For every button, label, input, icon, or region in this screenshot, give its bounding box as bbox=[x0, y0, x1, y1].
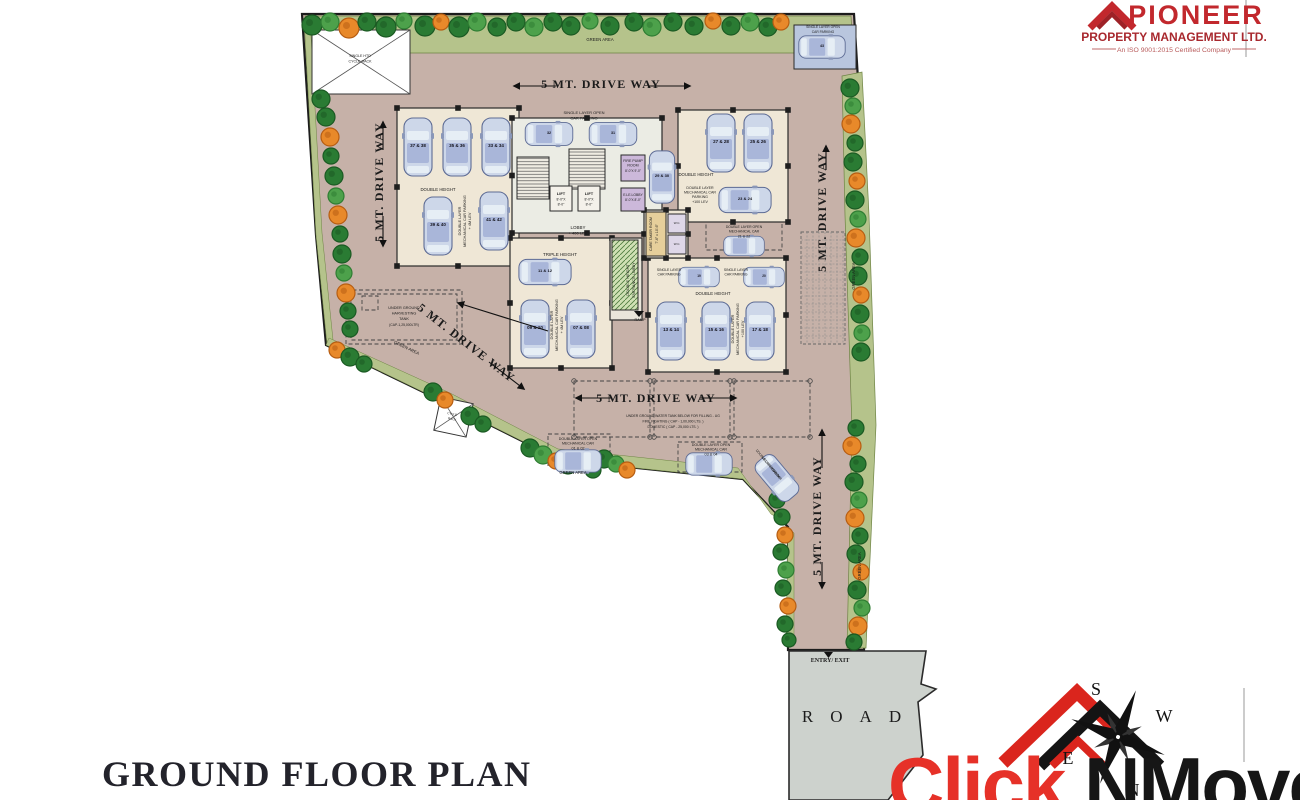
tree-detail bbox=[857, 603, 863, 609]
tree-detail bbox=[780, 530, 786, 536]
car-windshield bbox=[749, 238, 755, 253]
tree-detail bbox=[855, 531, 861, 537]
tree-detail bbox=[668, 17, 674, 23]
plan-label: CAR PARKING bbox=[724, 273, 747, 277]
car-mirror bbox=[422, 212, 425, 218]
car-mirror bbox=[648, 164, 651, 169]
car-mirror bbox=[715, 474, 720, 476]
car-icon: 07 & 08 bbox=[565, 300, 597, 358]
plan-label: DOUBLE LAYER bbox=[550, 310, 554, 339]
tree-icon bbox=[342, 321, 358, 337]
tree-icon bbox=[844, 153, 862, 171]
tree-icon bbox=[850, 456, 866, 472]
plan-label: LOBBY bbox=[570, 225, 585, 230]
plan-label: + 4M LEV bbox=[560, 316, 564, 333]
plan-label: + 4M LEV bbox=[468, 212, 472, 229]
tree-detail bbox=[849, 477, 855, 483]
column-tick bbox=[785, 107, 791, 113]
tree-icon bbox=[847, 545, 865, 563]
car-windshield bbox=[570, 313, 592, 322]
car-mirror bbox=[705, 129, 708, 135]
plan-label: MECHANICAL CAR bbox=[729, 230, 760, 234]
column-tick bbox=[455, 105, 461, 111]
tree-detail bbox=[647, 22, 653, 28]
tree-detail bbox=[329, 171, 335, 177]
car-mirror bbox=[773, 317, 776, 323]
car-windshield bbox=[555, 125, 562, 143]
column-tick bbox=[675, 107, 681, 113]
tree-detail bbox=[341, 288, 347, 294]
column-tick bbox=[714, 369, 720, 375]
car-icon: 33 & 34 bbox=[480, 118, 512, 176]
tree-detail bbox=[325, 17, 331, 23]
column-tick bbox=[685, 255, 691, 261]
tree-detail bbox=[776, 17, 782, 23]
car-windshield bbox=[769, 269, 775, 284]
tree-icon bbox=[854, 325, 870, 341]
car-icon: 43 bbox=[799, 34, 845, 60]
tree-detail bbox=[845, 83, 851, 89]
tree-detail bbox=[331, 191, 337, 197]
tree-icon bbox=[850, 211, 866, 227]
car-windshield bbox=[427, 210, 449, 219]
column-tick bbox=[659, 115, 665, 121]
tree-detail bbox=[362, 17, 368, 23]
plan-label: RAMP bbox=[635, 318, 646, 322]
car-mirror bbox=[828, 34, 833, 36]
plan-label: MECHANICAL CAR bbox=[562, 442, 594, 446]
column-tick bbox=[394, 105, 400, 111]
tree-detail bbox=[854, 495, 860, 501]
plan-label: CARE TAKER ROOM bbox=[649, 217, 653, 251]
plan-label: DOMESTIC ( CAP - 25,000 LTS. ) bbox=[647, 425, 698, 429]
plan-label: SINGLE HTD bbox=[349, 54, 371, 58]
tree-detail bbox=[419, 20, 426, 27]
tree-detail bbox=[708, 16, 714, 22]
column-tick bbox=[609, 365, 615, 371]
tree-detail bbox=[629, 17, 635, 23]
car-mirror bbox=[770, 266, 774, 268]
column-tick bbox=[645, 312, 651, 318]
car-rear-window bbox=[557, 452, 563, 470]
plan-label: SINGLE LAYER bbox=[724, 268, 749, 272]
plan-label: 8'-0"X 9'-0" bbox=[625, 169, 641, 173]
column-tick bbox=[730, 219, 736, 225]
tree-detail bbox=[472, 17, 478, 23]
tree-icon bbox=[775, 580, 791, 596]
tree-icon bbox=[449, 17, 469, 37]
tree-detail bbox=[321, 112, 327, 118]
tree-icon bbox=[777, 527, 793, 543]
car-mirror bbox=[507, 207, 510, 213]
tree-detail bbox=[566, 21, 572, 27]
plan-label: 8'-0" bbox=[586, 203, 594, 207]
car-mirror bbox=[750, 235, 754, 237]
car-windshield bbox=[705, 315, 727, 324]
plan-label: CAR PARKING bbox=[657, 273, 680, 277]
tree-icon bbox=[317, 108, 335, 126]
car-rear-window bbox=[747, 162, 769, 169]
tree-icon bbox=[325, 167, 343, 185]
plan-label: 8'-0"X bbox=[556, 198, 566, 202]
plan-label: 5 MT. DRIVE WAY bbox=[596, 391, 716, 405]
plan-label: MECHANICAL CAR bbox=[684, 191, 716, 195]
page-title: GROUND FLOOR PLAN bbox=[102, 754, 532, 794]
car-number-label: 17 & 18 bbox=[752, 327, 768, 332]
tree-icon bbox=[777, 616, 793, 632]
column-tick bbox=[714, 255, 720, 261]
car-roof bbox=[565, 452, 581, 470]
column-tick bbox=[507, 300, 513, 306]
car-rear-window bbox=[485, 166, 507, 173]
tree-detail bbox=[345, 324, 351, 330]
pioneer-tagline: An ISO 9001:2015 Certified Company bbox=[1117, 47, 1232, 54]
tree-detail bbox=[333, 210, 339, 216]
tree-icon bbox=[854, 600, 870, 616]
car-number-label: 37 & 38 bbox=[410, 143, 426, 148]
tree-icon bbox=[842, 115, 860, 133]
car-number-label: 27 & 28 bbox=[713, 139, 729, 144]
plan-label: (CAP-1,25,000LTR) bbox=[389, 323, 419, 327]
column-tick bbox=[783, 312, 789, 318]
column-tick bbox=[516, 105, 522, 111]
car-mirror bbox=[480, 133, 483, 139]
tree-icon bbox=[851, 305, 869, 323]
tree-detail bbox=[857, 328, 863, 334]
column-tick bbox=[394, 263, 400, 269]
tree-detail bbox=[852, 176, 858, 182]
plan-label: DOUBLE LAYER bbox=[686, 186, 714, 190]
car-icon: 35 & 36 bbox=[441, 118, 473, 176]
tree-icon bbox=[847, 135, 863, 151]
plan-label: MECHANICAL CAR PARKING bbox=[463, 195, 467, 247]
tree-detail bbox=[853, 459, 859, 465]
plan-label: MECHANICAL CAR PARKING bbox=[555, 299, 559, 351]
tree-icon bbox=[773, 544, 789, 560]
plan-label: HARVESTING bbox=[392, 312, 417, 316]
car-windshield bbox=[828, 38, 835, 56]
compass-s-label: S bbox=[1091, 679, 1101, 699]
car-rear-window bbox=[483, 240, 505, 247]
plan-label: 8'-0" bbox=[558, 203, 566, 207]
car-mirror bbox=[509, 133, 512, 139]
tree-detail bbox=[529, 22, 535, 28]
car-icon: 32 bbox=[525, 121, 573, 147]
tree-detail bbox=[849, 637, 855, 643]
car-icon: 17 & 18 bbox=[744, 302, 776, 360]
car-mirror bbox=[828, 57, 833, 59]
tree-icon bbox=[619, 462, 635, 478]
tree-icon bbox=[433, 14, 449, 30]
tree-detail bbox=[855, 309, 861, 315]
car-mirror bbox=[552, 258, 557, 261]
car-mirror bbox=[620, 145, 625, 147]
plan-label: DOUBLE HEIGHT bbox=[678, 172, 713, 177]
car-mirror bbox=[684, 317, 687, 323]
car-rear-window bbox=[570, 348, 592, 355]
plan-label: +100 LEV bbox=[741, 320, 745, 337]
plan-label: DOUBLE HEIGHT bbox=[420, 187, 455, 192]
car-rear-window bbox=[407, 166, 429, 173]
plan-label: 01 & 02 bbox=[571, 447, 584, 451]
wordmark-click: Click bbox=[888, 741, 1067, 800]
plan-label: DOUBLE LAYER OPEN bbox=[559, 437, 598, 441]
car-rear-window bbox=[749, 350, 771, 357]
tree-detail bbox=[337, 249, 343, 255]
plan-label: GREEN AREA bbox=[586, 37, 613, 42]
tree-detail bbox=[345, 352, 351, 358]
car-mirror bbox=[451, 212, 454, 218]
column-tick bbox=[509, 173, 515, 179]
pioneer-logo: PIONEER PROPERTY MANAGEMENT LTD. An ISO … bbox=[1081, 0, 1267, 54]
plan-label: FIRE FIGHTING ( CAP - 1,00,000 LTS. ) bbox=[643, 420, 704, 424]
tree-icon bbox=[849, 617, 867, 635]
car-rear-window bbox=[722, 190, 728, 210]
tree-icon bbox=[415, 16, 435, 36]
plan-label: + 400 LEV bbox=[569, 231, 588, 236]
plan-label: 03 & 04 bbox=[704, 453, 717, 457]
plan-label: ENTRY/ EXIT bbox=[811, 658, 850, 664]
car-roof bbox=[733, 238, 747, 253]
tree-icon bbox=[339, 18, 359, 38]
tree-icon bbox=[333, 245, 351, 263]
tree-detail bbox=[492, 22, 498, 28]
tree-detail bbox=[856, 290, 862, 296]
plan-label: ROOM bbox=[627, 164, 638, 168]
car-mirror bbox=[478, 207, 481, 213]
tree-detail bbox=[548, 17, 554, 23]
column-tick bbox=[509, 115, 515, 121]
car-number-label: 11 & 12 bbox=[538, 268, 553, 273]
tree-icon bbox=[475, 416, 491, 432]
tree-detail bbox=[853, 621, 859, 627]
tree-icon bbox=[741, 13, 759, 31]
tree-icon bbox=[664, 13, 682, 31]
car-windshield bbox=[483, 205, 505, 214]
car-icon: 41 & 42 bbox=[478, 192, 510, 250]
plan-label: CAR PARKING bbox=[812, 30, 835, 34]
wordmark-nmove: NMove bbox=[1084, 741, 1300, 800]
car-roof bbox=[696, 455, 712, 473]
column-tick bbox=[685, 207, 691, 213]
plan-label: W.C. bbox=[674, 242, 681, 246]
car-mirror bbox=[519, 315, 522, 321]
tree-icon bbox=[437, 392, 453, 408]
floor-plan-canvas: 37 & 3835 & 3633 & 3439 & 4041 & 4232312… bbox=[0, 0, 1300, 800]
tree-detail bbox=[465, 411, 471, 417]
tree-detail bbox=[785, 636, 790, 641]
car-icon: 29 & 30 bbox=[648, 151, 677, 203]
car-number-label: 15 & 16 bbox=[708, 327, 724, 332]
tree-icon bbox=[852, 343, 870, 361]
tree-icon bbox=[846, 634, 862, 650]
car-rear-window bbox=[801, 38, 807, 56]
tree-icon bbox=[488, 18, 506, 36]
tree-detail bbox=[325, 132, 331, 138]
tree-icon bbox=[321, 128, 339, 146]
column-tick bbox=[558, 365, 564, 371]
clicknmove-wordmark: Click NMove bbox=[888, 741, 1300, 800]
plan-label: W.C. bbox=[674, 221, 681, 225]
tree-icon bbox=[845, 473, 863, 491]
tree-icon bbox=[336, 265, 352, 281]
column-tick bbox=[785, 163, 791, 169]
car-number-label: 35 & 36 bbox=[449, 143, 465, 148]
tree-icon bbox=[848, 420, 864, 436]
plan-label: 7'-6" x 10'-6" bbox=[655, 223, 659, 243]
tree-detail bbox=[783, 601, 789, 607]
car-number-label: 41 & 42 bbox=[486, 217, 502, 222]
car-rear-window bbox=[705, 350, 727, 357]
car-mirror bbox=[700, 317, 703, 323]
car-windshield bbox=[407, 131, 429, 140]
tree-detail bbox=[852, 585, 858, 591]
tree-icon bbox=[468, 13, 486, 31]
car-icon: 31 bbox=[589, 121, 637, 147]
tree-icon bbox=[601, 17, 619, 35]
tree-detail bbox=[781, 565, 787, 571]
tree-detail bbox=[332, 345, 338, 351]
plan-label: SINGLE LAYER bbox=[657, 268, 682, 272]
tree-detail bbox=[380, 21, 387, 28]
plan-label: TRIPLE HEIGHT bbox=[543, 252, 577, 257]
plan-label: 8'-0"X 8'-0" bbox=[625, 198, 641, 202]
column-tick bbox=[783, 369, 789, 375]
car-rear-window bbox=[652, 194, 672, 200]
plan-label: GREEN AREA bbox=[851, 262, 856, 289]
plan-label: SINGLE LAYER OPEN bbox=[806, 25, 840, 29]
tree-icon bbox=[625, 13, 643, 31]
tree-icon bbox=[848, 581, 866, 599]
plan-label: TANK bbox=[399, 317, 409, 321]
car-icon: 13 & 14 bbox=[655, 302, 687, 360]
tree-detail bbox=[306, 19, 313, 26]
car-number-label: 25 & 26 bbox=[750, 139, 766, 144]
tree-detail bbox=[850, 138, 856, 144]
car-number-label: 29 & 30 bbox=[655, 173, 670, 178]
tree-detail bbox=[726, 21, 732, 27]
car-rear-window bbox=[681, 269, 686, 284]
plan-label: GREEN AREA bbox=[559, 470, 586, 475]
car-rear-window bbox=[688, 455, 694, 473]
car-number-label: 23 & 24 bbox=[738, 196, 753, 201]
car-mirror bbox=[584, 448, 589, 450]
tree-icon bbox=[846, 191, 864, 209]
car-windshield bbox=[485, 131, 507, 140]
plan-label: PARKING bbox=[692, 195, 708, 199]
car-rear-window bbox=[592, 125, 598, 143]
plan-label: DOUBLE LAYER OPEN bbox=[726, 225, 763, 229]
plan-label: E.LE.LOBBY bbox=[623, 193, 643, 197]
column-tick bbox=[509, 230, 515, 236]
plan-label: CYCLE RACK bbox=[349, 60, 373, 64]
tree-icon bbox=[841, 79, 859, 97]
plan-label: FIRE PUMP bbox=[623, 159, 643, 163]
tree-detail bbox=[853, 214, 859, 220]
plan-label: GREEN AREA bbox=[857, 552, 862, 579]
tree-icon bbox=[332, 226, 348, 242]
plan-label: ROAD bbox=[802, 707, 918, 726]
tree-detail bbox=[605, 21, 611, 27]
tree-detail bbox=[846, 119, 852, 125]
tree-detail bbox=[622, 465, 628, 471]
car-mirror bbox=[705, 266, 709, 268]
car-windshield bbox=[751, 190, 759, 210]
tree-icon bbox=[782, 633, 796, 647]
tree-icon bbox=[312, 90, 330, 108]
car-icon: 27 & 28 bbox=[705, 114, 737, 172]
tree-icon bbox=[773, 14, 789, 30]
car-windshield bbox=[747, 127, 769, 136]
tree-detail bbox=[359, 359, 365, 365]
car-mirror bbox=[752, 212, 757, 215]
car-mirror bbox=[674, 164, 677, 169]
tree-icon bbox=[396, 13, 412, 29]
plan-label: 5 MT. DRIVE WAY bbox=[372, 122, 386, 242]
tree-icon bbox=[685, 17, 703, 35]
car-mirror bbox=[705, 286, 709, 288]
tree-icon bbox=[705, 13, 721, 29]
tree-icon bbox=[774, 509, 790, 525]
plan-label: DOUBLE LAYER bbox=[458, 206, 462, 235]
plan-label: CAR PARKING bbox=[570, 116, 597, 121]
tree-icon bbox=[323, 148, 339, 164]
car-windshield bbox=[619, 125, 626, 143]
car-icon: 39 & 40 bbox=[422, 197, 454, 255]
car-icon: 15 & 16 bbox=[700, 302, 732, 360]
car-mirror bbox=[552, 284, 557, 287]
car-number-label: 33 & 34 bbox=[488, 143, 504, 148]
column-tick bbox=[558, 235, 564, 241]
car-windshield bbox=[446, 131, 468, 140]
column-tick bbox=[730, 107, 736, 113]
tree-detail bbox=[343, 22, 350, 29]
car-windshield bbox=[584, 452, 591, 470]
column-tick bbox=[645, 369, 651, 375]
car-number-label: 31 bbox=[611, 131, 615, 135]
car-windshield bbox=[551, 262, 559, 282]
car-mirror bbox=[441, 133, 444, 139]
car-mirror bbox=[752, 186, 757, 189]
tree-detail bbox=[851, 233, 857, 239]
tree-icon bbox=[329, 206, 347, 224]
tree-detail bbox=[689, 21, 695, 27]
plan-label: +100 LEV bbox=[692, 200, 708, 204]
tree-detail bbox=[478, 419, 484, 425]
car-windshield bbox=[652, 163, 672, 171]
column-tick bbox=[455, 263, 461, 269]
plan-label: 5 MT. DRIVE WAY bbox=[541, 77, 661, 91]
car-mirror bbox=[771, 129, 774, 135]
car-mirror bbox=[402, 133, 405, 139]
car-mirror bbox=[750, 255, 754, 257]
tree-detail bbox=[538, 450, 544, 456]
car-windshield bbox=[715, 455, 722, 473]
car-rear-window bbox=[524, 348, 546, 355]
tree-detail bbox=[850, 195, 856, 201]
tree-icon bbox=[525, 18, 543, 36]
car-icon: 19 bbox=[679, 266, 720, 288]
tree-icon bbox=[849, 173, 865, 189]
plan-label: 8'-0"X bbox=[584, 198, 594, 202]
tree-icon bbox=[358, 13, 376, 31]
tree-detail bbox=[343, 306, 349, 312]
tree-detail bbox=[399, 16, 405, 22]
car-mirror bbox=[431, 133, 434, 139]
tree-detail bbox=[855, 252, 861, 258]
tree-icon bbox=[356, 356, 372, 372]
tree-icon bbox=[302, 15, 322, 35]
